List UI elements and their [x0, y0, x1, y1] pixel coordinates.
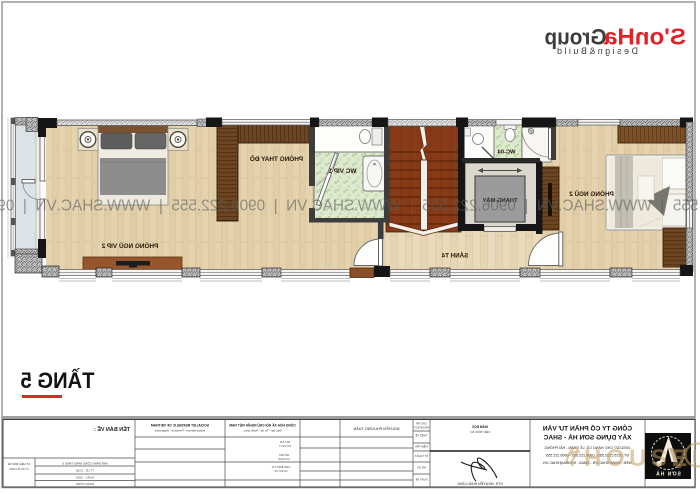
svg-text:XÂY DỰNG SƠN HÀ - SHAC: XÂY DỰNG SƠN HÀ - SHAC	[543, 433, 631, 442]
svg-text:KT-05 SH 0906: KT-05 SH 0906	[9, 467, 29, 471]
svg-text:WC VIP 1: WC VIP 1	[328, 168, 356, 175]
svg-text:TỶ LỆ : 1/100: TỶ LỆ : 1/100	[76, 468, 95, 473]
svg-text:KTS. NGUYỄN HOÀI LONG: KTS. NGUYỄN HOÀI LONG	[457, 481, 503, 486]
svg-text:WC-04: WC-04	[497, 150, 516, 156]
svg-text:HOÀN CÔNG: HOÀN CÔNG	[75, 481, 94, 486]
svg-text:PHÒNG NGỦ VIP 2: PHÒNG NGỦ VIP 2	[101, 241, 158, 250]
svg-text:Independence - Freedom - Happi: Independence - Freedom - Happiness	[154, 429, 205, 433]
svg-text:.222.555 | WWW.SHAC.VN | 0: .222.555 | WWW.SHAC.VN | 0906.222.555 | …	[0, 198, 700, 215]
svg-text:NGUYỄN PHƯỢNG TUẤN: NGUYỄN PHƯỢNG TUẤN	[353, 426, 399, 431]
svg-text:HỒ SƠ: HỒ SƠ	[279, 452, 289, 457]
svg-text:KÝ HIỆU BẢN VẼ: KÝ HIỆU BẢN VẼ	[8, 461, 30, 466]
svg-text:SOCIALIST REPUBLIC OF VIETNAM: SOCIALIST REPUBLIC OF VIETNAM	[151, 424, 209, 428]
svg-text:MẶT BẰNG CÔNG NĂNG TẦNG 5: MẶT BẰNG CÔNG NĂNG TẦNG 5	[62, 461, 107, 466]
svg-text:ARCHITECT: ARCHITECT	[413, 426, 429, 430]
svg-text:Độc lập - Tự do - Hạnh phúc: Độc lập - Tự do - Hạnh phúc	[243, 429, 281, 433]
svg-text:PROJECT: PROJECT	[279, 444, 292, 448]
svg-text:GIÁM ĐỐC: GIÁM ĐỐC	[471, 424, 488, 429]
svg-text:TÊN BẢN VẼ :: TÊN BẢN VẼ :	[94, 425, 130, 433]
svg-text:D e s i g n & B u i l d: D e s i g n & B u i l d	[557, 46, 638, 57]
svg-text:DOSSIER: DOSSIER	[278, 457, 290, 461]
svg-text:TẦNG 5: TẦNG 5	[21, 368, 95, 393]
svg-text:INVESTOR: INVESTOR	[274, 469, 287, 473]
svg-text:KIẾN TRÚC SƯ: KIẾN TRÚC SƯ	[469, 429, 490, 434]
svg-text:CỘNG HÒA XÃ HỘI CHỦ NGHĨA VIỆT: CỘNG HÒA XÃ HỘI CHỦ NGHĨA VIỆT NAM	[229, 423, 296, 428]
svg-text:CHỦ ĐẦU TƯ: CHỦ ĐẦU TƯ	[271, 464, 290, 469]
svg-text:NGÀY : 2020: NGÀY : 2020	[76, 476, 94, 480]
svg-text:SẢNH T4: SẢNH T4	[441, 253, 468, 260]
svg-text:DỰ ÁN: DỰ ÁN	[280, 440, 290, 444]
svg-text:I: I	[692, 447, 697, 467]
